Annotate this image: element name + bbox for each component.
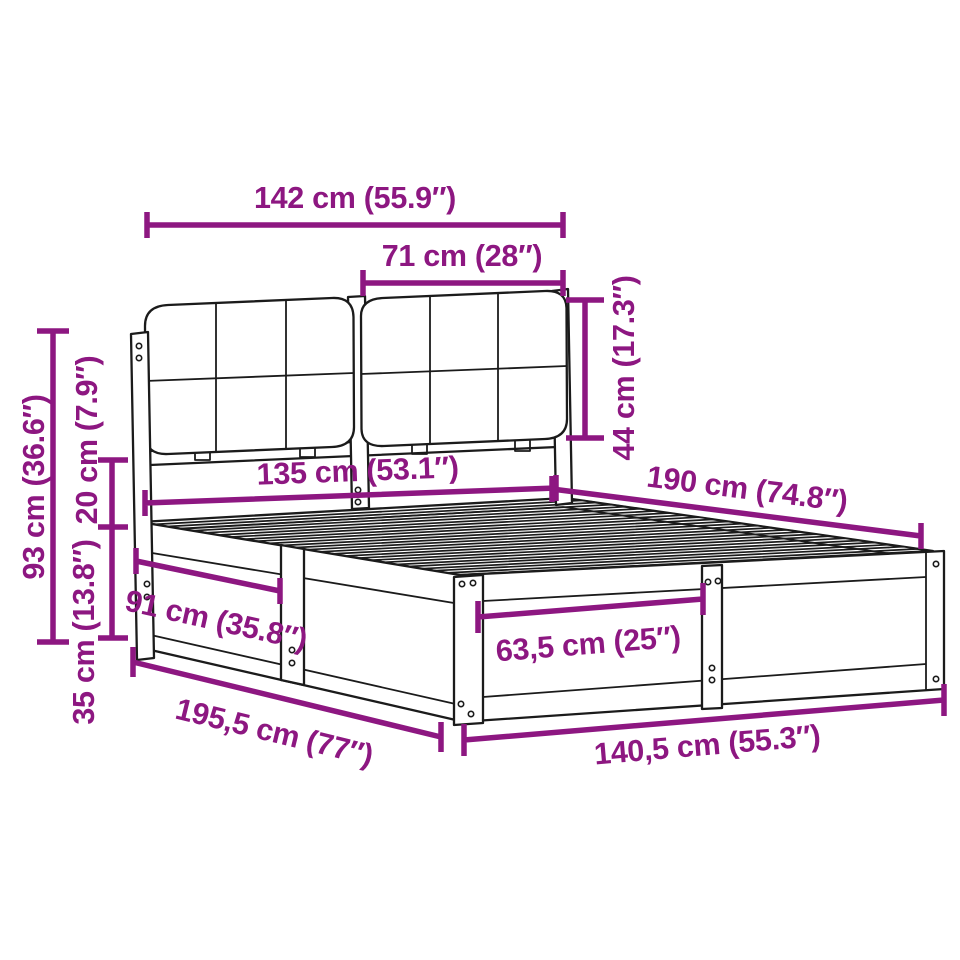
bed-dimension-svg: 142 cm (55.9″) 71 cm (28″) 44 cm (17.3″)… [0,0,960,960]
screw-icon [709,677,714,682]
screw-icon [136,355,141,360]
screw-icon [470,580,475,585]
dim-label-headboard-width: 142 cm (55.9″) [254,181,456,215]
dim-label-gap-height: 20 cm (7.9″) [70,356,104,525]
dim-label-inner-length: 190 cm (74.8″) [645,460,850,519]
screw-icon [289,660,294,665]
dimension-cushion-height: 44 cm (17.3″) [566,275,641,460]
screw-icon [933,561,938,566]
dimension-cushion-width: 71 cm (28″) [363,239,563,296]
screw-icon [705,579,710,584]
dimension-headboard-height: 93 cm (36.6″) [17,331,69,642]
headboard-cushion-left [145,298,354,454]
dim-label-cushion-width: 71 cm (28″) [382,239,543,273]
screw-icon [933,676,938,681]
dim-line-headboard-width [147,212,563,238]
dimension-frame-height: 35 cm (13.8″) [67,527,128,725]
dim-label-headboard-height: 93 cm (36.6″) [17,394,51,579]
cushion-left-outline [145,298,354,454]
screw-icon [459,581,464,586]
dimension-gap-height: 20 cm (7.9″) [70,356,128,527]
cushion-right-outline [361,291,567,446]
screw-icon [136,343,141,348]
dim-label-inner-width: 135 cm (53.1″) [256,450,459,491]
screw-icon [709,665,714,670]
bed-dimension-diagram: 142 cm (55.9″) 71 cm (28″) 44 cm (17.3″)… [0,0,960,960]
dim-line-cushion-height [566,300,604,438]
dim-label-cushion-height: 44 cm (17.3″) [607,275,641,460]
screw-icon [458,701,463,706]
screw-icon [355,487,360,492]
screw-icon [715,578,720,583]
screw-icon [355,499,360,504]
dim-label-frame-height: 35 cm (13.8″) [67,539,101,724]
screw-icon [144,581,149,586]
headboard-cushion-right [361,291,567,446]
dimension-headboard-width: 142 cm (55.9″) [147,181,563,238]
dim-line-frame-height [98,527,128,638]
screw-icon [468,711,473,716]
dim-label-total-length: 195,5 cm (77″) [172,692,376,773]
